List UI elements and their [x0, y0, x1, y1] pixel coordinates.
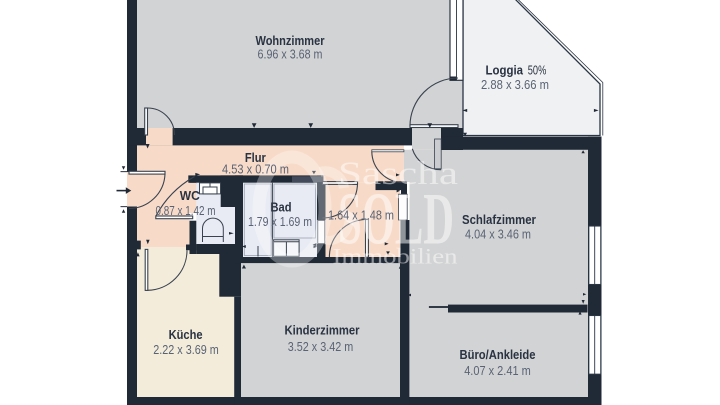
svg-text:Schlafzimmer: Schlafzimmer	[462, 212, 536, 227]
svg-text:0.87 x 1.42 m: 0.87 x 1.42 m	[156, 204, 216, 218]
svg-text:Bad: Bad	[271, 200, 292, 215]
svg-text:Büro/Ankleide: Büro/Ankleide	[460, 347, 536, 362]
svg-text:4.04 x 3.46 m: 4.04 x 3.46 m	[465, 227, 531, 242]
svg-text:1.64 x 1.48 m: 1.64 x 1.48 m	[328, 207, 394, 222]
svg-text:6.96 x 3.68 m: 6.96 x 3.68 m	[258, 47, 323, 62]
svg-text:2.22 x 3.69 m: 2.22 x 3.69 m	[153, 342, 219, 357]
svg-text:Küche: Küche	[169, 327, 203, 342]
svg-text:1.79 x 1.69 m: 1.79 x 1.69 m	[248, 214, 312, 229]
svg-text:2.88 x 3.66 m: 2.88 x 3.66 m	[481, 77, 549, 92]
svg-text:Kinderzimmer: Kinderzimmer	[285, 323, 360, 338]
svg-text:4.53 x 0.70 m: 4.53 x 0.70 m	[222, 162, 289, 177]
svg-text:3.52 x 3.42 m: 3.52 x 3.42 m	[288, 339, 353, 354]
svg-text:Immobilien: Immobilien	[333, 244, 458, 269]
svg-text:50%: 50%	[528, 63, 547, 78]
svg-text:Loggia: Loggia	[486, 63, 524, 78]
svg-text:WC: WC	[180, 188, 200, 203]
svg-text:4.07 x 2.41 m: 4.07 x 2.41 m	[464, 363, 531, 378]
svg-text:Wohnzimmer: Wohnzimmer	[256, 33, 325, 48]
